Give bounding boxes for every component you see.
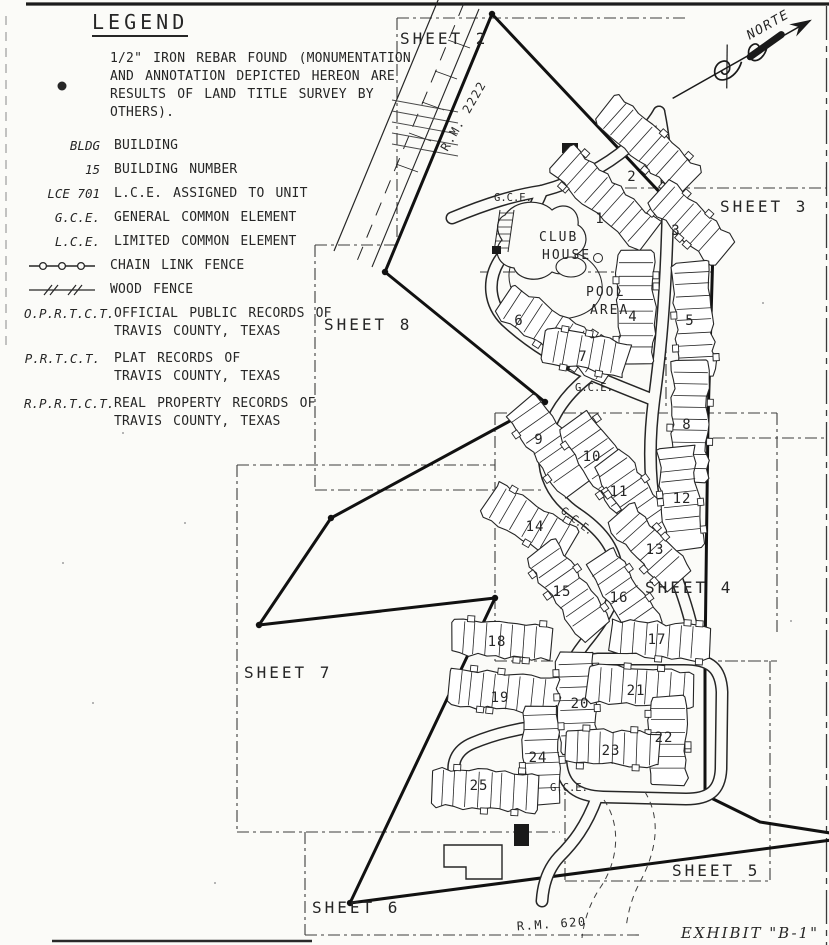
gce-label-4: G.C.E. [550,782,588,794]
area-label-pool: POOL [586,285,625,300]
legend-definition: CHAIN LINK FENCE [110,257,244,275]
legend-item: O.P.R.T.C.T.OFFICIAL PUBLIC RECORDS OFTR… [24,305,416,341]
building-number-13: 13 [646,542,665,558]
legend-item: R.P.R.T.C.T.REAL PROPERTY RECORDS OFTRAV… [24,395,416,431]
building-number-21: 21 [627,683,646,699]
area-label-club: CLUB [539,230,578,245]
legend-definition: 1/2" IRON REBAR FOUND (MONUMENTATIONAND … [110,50,416,122]
building-number-12: 12 [673,491,692,507]
building-number-4: 4 [628,309,637,325]
building-number-20: 20 [571,696,590,712]
legend-definition: WOOD FENCE [110,281,193,299]
creek-line [626,792,655,928]
legend-term: R.P.R.T.C.T. [24,395,104,431]
solid-structure-mark [514,824,529,846]
building-number-7: 7 [578,349,587,365]
building-number-14: 14 [526,519,545,535]
north-label: NORTE [743,7,792,44]
legend-item: L.C.E.LIMITED COMMON ELEMENT [24,233,416,251]
building-number-17: 17 [648,632,667,648]
rebar-point [492,595,498,601]
building-number-25: 25 [470,778,489,794]
area-label-area: AREA [590,303,629,318]
legend-definition: PLAT RECORDS OFTRAVIS COUNTY, TEXAS [114,350,281,386]
building-number-9: 9 [534,432,543,448]
building-number-2: 2 [627,169,636,185]
legend-item: CHAIN LINK FENCE [24,257,416,275]
legend-definition: REAL PROPERTY RECORDS OFTRAVIS COUNTY, T… [114,395,316,431]
legend-definition: LIMITED COMMON ELEMENT [114,233,297,251]
legend-item: LCE 701L.C.E. ASSIGNED TO UNIT [24,185,416,203]
exhibit-label: EXHIBIT "B-1" [681,924,819,942]
legend-item: BLDGBUILDING [24,137,416,155]
legend-definition: GENERAL COMMON ELEMENT [114,209,297,227]
building-number-22: 22 [655,730,674,746]
building-number-1: 1 [595,211,604,227]
building-number-15: 15 [553,584,572,600]
building-number-23: 23 [602,743,621,759]
legend-title: LEGEND [92,10,188,37]
building-number-16: 16 [610,590,629,606]
building-number-11: 11 [610,484,629,500]
sheet-label-sheet-5: SHEET 5 [672,861,760,880]
legend-item: P.R.T.C.T.PLAT RECORDS OFTRAVIS COUNTY, … [24,350,416,386]
legend-item: G.C.E.GENERAL COMMON ELEMENT [24,209,416,227]
road-label-r-m-620: R.M. 620 [516,915,587,934]
gce-label-1: G.C.E. [494,192,532,204]
legend-term: P.R.T.C.T. [24,350,104,386]
gce-label-2: G.C.E. [575,382,613,394]
sheet-label-sheet-4: SHEET 4 [645,578,733,597]
chain-link-fence-symbol [24,257,100,275]
rebar-point-symbol [24,50,100,122]
building-number-5: 5 [685,313,694,329]
legend-definition: OFFICIAL PUBLIC RECORDS OFTRAVIS COUNTY,… [114,305,332,341]
rebar-point [489,11,495,17]
rebar-point [328,515,334,521]
building-number-19: 19 [491,690,510,706]
legend-item: WOOD FENCE [24,281,416,299]
legend-item: 15BUILDING NUMBER [24,161,416,179]
legend-term: L.C.E. [24,233,104,251]
sheet-label-sheet-6: SHEET 6 [312,898,400,917]
legend-item: 1/2" IRON REBAR FOUND (MONUMENTATIONAND … [24,50,416,122]
legend-term: 15 [24,161,104,179]
building-number-10: 10 [583,449,602,465]
legend-definition: L.C.E. ASSIGNED TO UNIT [114,185,308,203]
legend-term: G.C.E. [24,209,104,227]
legend-term: O.P.R.T.C.T. [24,305,104,341]
legend-definition: BUILDING [114,137,178,155]
sheet-label-sheet-7: SHEET 7 [244,663,332,682]
legend-definition: BUILDING NUMBER [114,161,237,179]
building-number-24: 24 [529,750,548,766]
legend-term: BLDG [24,137,104,155]
north-arrow: NORTE [661,0,821,114]
building-number-6: 6 [514,313,523,329]
legend-term: LCE 701 [24,185,104,203]
area-label-house: HOUSE [542,248,591,263]
scanned-plat-page: 1234567891011121314151617181920212223242… [0,0,829,945]
sheet-label-sheet-3: SHEET 3 [720,197,808,216]
rebar-point [256,622,262,628]
solid-structure-mark [492,246,501,254]
building-number-18: 18 [488,634,507,650]
legend-rows: 1/2" IRON REBAR FOUND (MONUMENTATIONAND … [24,50,416,431]
small-structure-outline [444,845,502,879]
wood-fence-symbol [24,281,100,299]
building-number-8: 8 [682,417,691,433]
building-number-3: 3 [671,223,680,239]
legend: LEGEND 1/2" IRON REBAR FOUND (MONUMENTAT… [24,10,416,440]
